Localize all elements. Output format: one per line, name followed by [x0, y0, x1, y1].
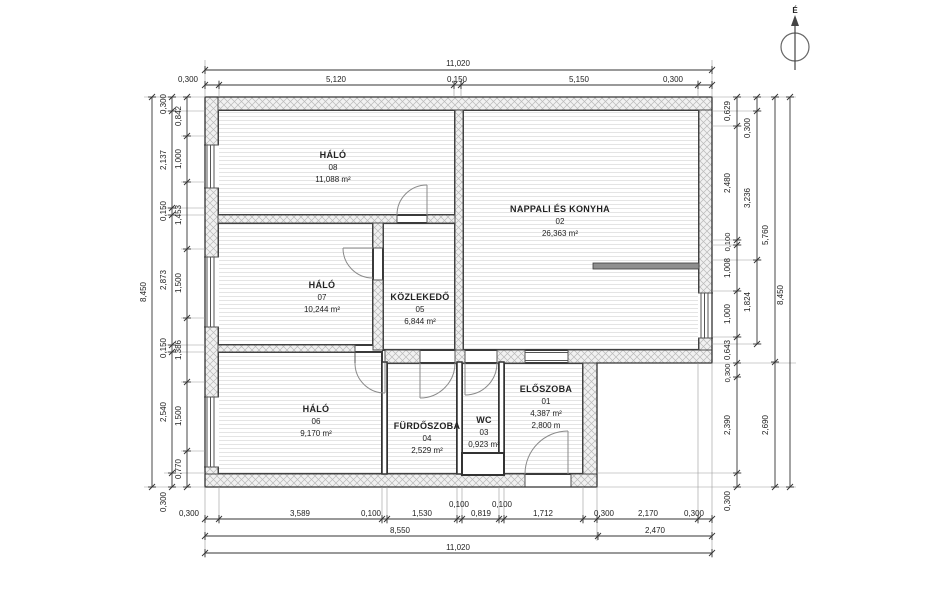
svg-text:0,842: 0,842	[174, 105, 183, 126]
window-halo-08	[204, 145, 219, 188]
north-label: É	[792, 6, 798, 15]
room-nappali-floor	[463, 110, 699, 350]
svg-text:3,589: 3,589	[290, 509, 311, 518]
svg-text:0,819: 0,819	[471, 509, 492, 518]
svg-text:0,100: 0,100	[723, 233, 732, 252]
svg-text:2,390: 2,390	[723, 414, 732, 435]
svg-text:3,236: 3,236	[743, 187, 752, 208]
svg-text:1,530: 1,530	[412, 509, 433, 518]
svg-text:0,770: 0,770	[174, 458, 183, 479]
svg-text:0,629: 0,629	[723, 100, 732, 121]
svg-text:NAPPALI ÉS KONYHA: NAPPALI ÉS KONYHA	[510, 204, 610, 214]
svg-text:0,300: 0,300	[723, 490, 732, 511]
room-eloszoba-floor	[504, 363, 583, 474]
svg-text:FÜRDŐSZOBA: FÜRDŐSZOBA	[394, 420, 461, 431]
svg-text:1,500: 1,500	[174, 272, 183, 293]
svg-text:0,150: 0,150	[447, 75, 468, 84]
svg-text:07: 07	[318, 293, 327, 302]
svg-text:2,690: 2,690	[761, 414, 770, 435]
svg-text:0,300: 0,300	[743, 117, 752, 138]
svg-text:2,137: 2,137	[159, 149, 168, 170]
svg-text:04: 04	[423, 434, 432, 443]
dim-left-outer-line	[148, 94, 156, 490]
svg-text:6,844 m²: 6,844 m²	[404, 317, 436, 326]
svg-text:0,100: 0,100	[492, 500, 513, 509]
svg-text:2,529 m²: 2,529 m²	[411, 446, 443, 455]
north-arrow: É	[781, 6, 809, 70]
svg-text:2,470: 2,470	[645, 526, 666, 535]
north-arrowhead	[791, 15, 799, 26]
room-halo-06-floor	[218, 352, 382, 474]
dim-right-inner-line	[733, 94, 741, 490]
window-nappali	[698, 293, 713, 338]
svg-text:0,300: 0,300	[723, 364, 732, 383]
dim-right-outer-line	[786, 94, 794, 490]
svg-text:2,540: 2,540	[159, 401, 168, 422]
dim-bottom-total: 11,020	[446, 543, 470, 552]
floor-plan-page: HÁLÓ 08 11,088 m² NAPPALI ÉS KONYHA 02 2…	[0, 0, 945, 600]
svg-text:ELŐSZOBA: ELŐSZOBA	[520, 383, 573, 394]
dim-left-inner-line	[183, 94, 191, 490]
kitchen-partition	[593, 263, 699, 269]
svg-text:5,120: 5,120	[326, 75, 347, 84]
svg-text:HÁLÓ: HÁLÓ	[309, 279, 336, 290]
svg-text:26,363 m²: 26,363 m²	[542, 229, 578, 238]
svg-text:1,500: 1,500	[174, 405, 183, 426]
floor-plan-canvas: HÁLÓ 08 11,088 m² NAPPALI ÉS KONYHA 02 2…	[0, 0, 945, 600]
svg-text:0,300: 0,300	[663, 75, 684, 84]
window-halo-07	[204, 257, 219, 327]
svg-text:0,300: 0,300	[684, 509, 705, 518]
svg-text:WC: WC	[476, 415, 492, 425]
svg-text:0,150: 0,150	[159, 337, 168, 358]
dim-right-mid-line	[753, 94, 761, 347]
svg-text:11,088 m²: 11,088 m²	[315, 175, 351, 184]
svg-text:2,873: 2,873	[159, 269, 168, 290]
wc-fixture	[462, 453, 504, 475]
svg-text:06: 06	[312, 417, 321, 426]
room-furdoszoba-floor	[387, 363, 457, 474]
svg-text:0,100: 0,100	[361, 509, 382, 518]
svg-text:8,450: 8,450	[139, 281, 148, 302]
svg-text:1,712: 1,712	[533, 509, 554, 518]
svg-text:0,150: 0,150	[159, 200, 168, 221]
svg-text:2,800 m: 2,800 m	[532, 421, 561, 430]
svg-text:1,008: 1,008	[723, 257, 732, 278]
svg-text:2,170: 2,170	[638, 509, 659, 518]
svg-text:8,550: 8,550	[390, 526, 411, 535]
svg-text:0,100: 0,100	[449, 500, 470, 509]
svg-text:0,300: 0,300	[179, 509, 200, 518]
svg-text:08: 08	[329, 163, 338, 172]
svg-text:0,300: 0,300	[159, 491, 168, 512]
window-halo-06	[204, 397, 219, 467]
svg-text:1,824: 1,824	[743, 291, 752, 312]
svg-text:1,000: 1,000	[174, 148, 183, 169]
svg-text:5,150: 5,150	[569, 75, 590, 84]
dim-bottom-mid-line	[202, 532, 715, 540]
svg-text:4,387 m²: 4,387 m²	[530, 409, 562, 418]
svg-text:0,643: 0,643	[723, 339, 732, 360]
svg-text:1,000: 1,000	[723, 303, 732, 324]
room-halo-07-floor	[218, 223, 373, 345]
svg-text:HÁLÓ: HÁLÓ	[303, 403, 330, 414]
dim-top-total: 11,020	[446, 59, 470, 68]
svg-text:02: 02	[556, 217, 565, 226]
svg-text:03: 03	[480, 428, 489, 437]
svg-text:10,244 m²: 10,244 m²	[304, 305, 340, 314]
svg-text:1,453: 1,453	[174, 204, 183, 225]
svg-text:05: 05	[416, 305, 425, 314]
room-kozlekedo-floor	[383, 223, 455, 350]
svg-text:5,760: 5,760	[761, 224, 770, 245]
svg-text:KÖZLEKEDŐ: KÖZLEKEDŐ	[390, 291, 449, 302]
svg-text:01: 01	[542, 397, 551, 406]
svg-text:1,386: 1,386	[174, 339, 183, 360]
svg-text:0,300: 0,300	[159, 93, 168, 114]
svg-text:HÁLÓ: HÁLÓ	[320, 149, 347, 160]
svg-text:2,480: 2,480	[723, 172, 732, 193]
svg-text:0,300: 0,300	[178, 75, 199, 84]
opening-eloszoba	[525, 350, 568, 363]
svg-text:0,300: 0,300	[594, 509, 615, 518]
svg-text:0,923 m²: 0,923 m²	[468, 440, 500, 449]
svg-text:9,170 m²: 9,170 m²	[300, 429, 332, 438]
svg-text:8,450: 8,450	[776, 284, 785, 305]
